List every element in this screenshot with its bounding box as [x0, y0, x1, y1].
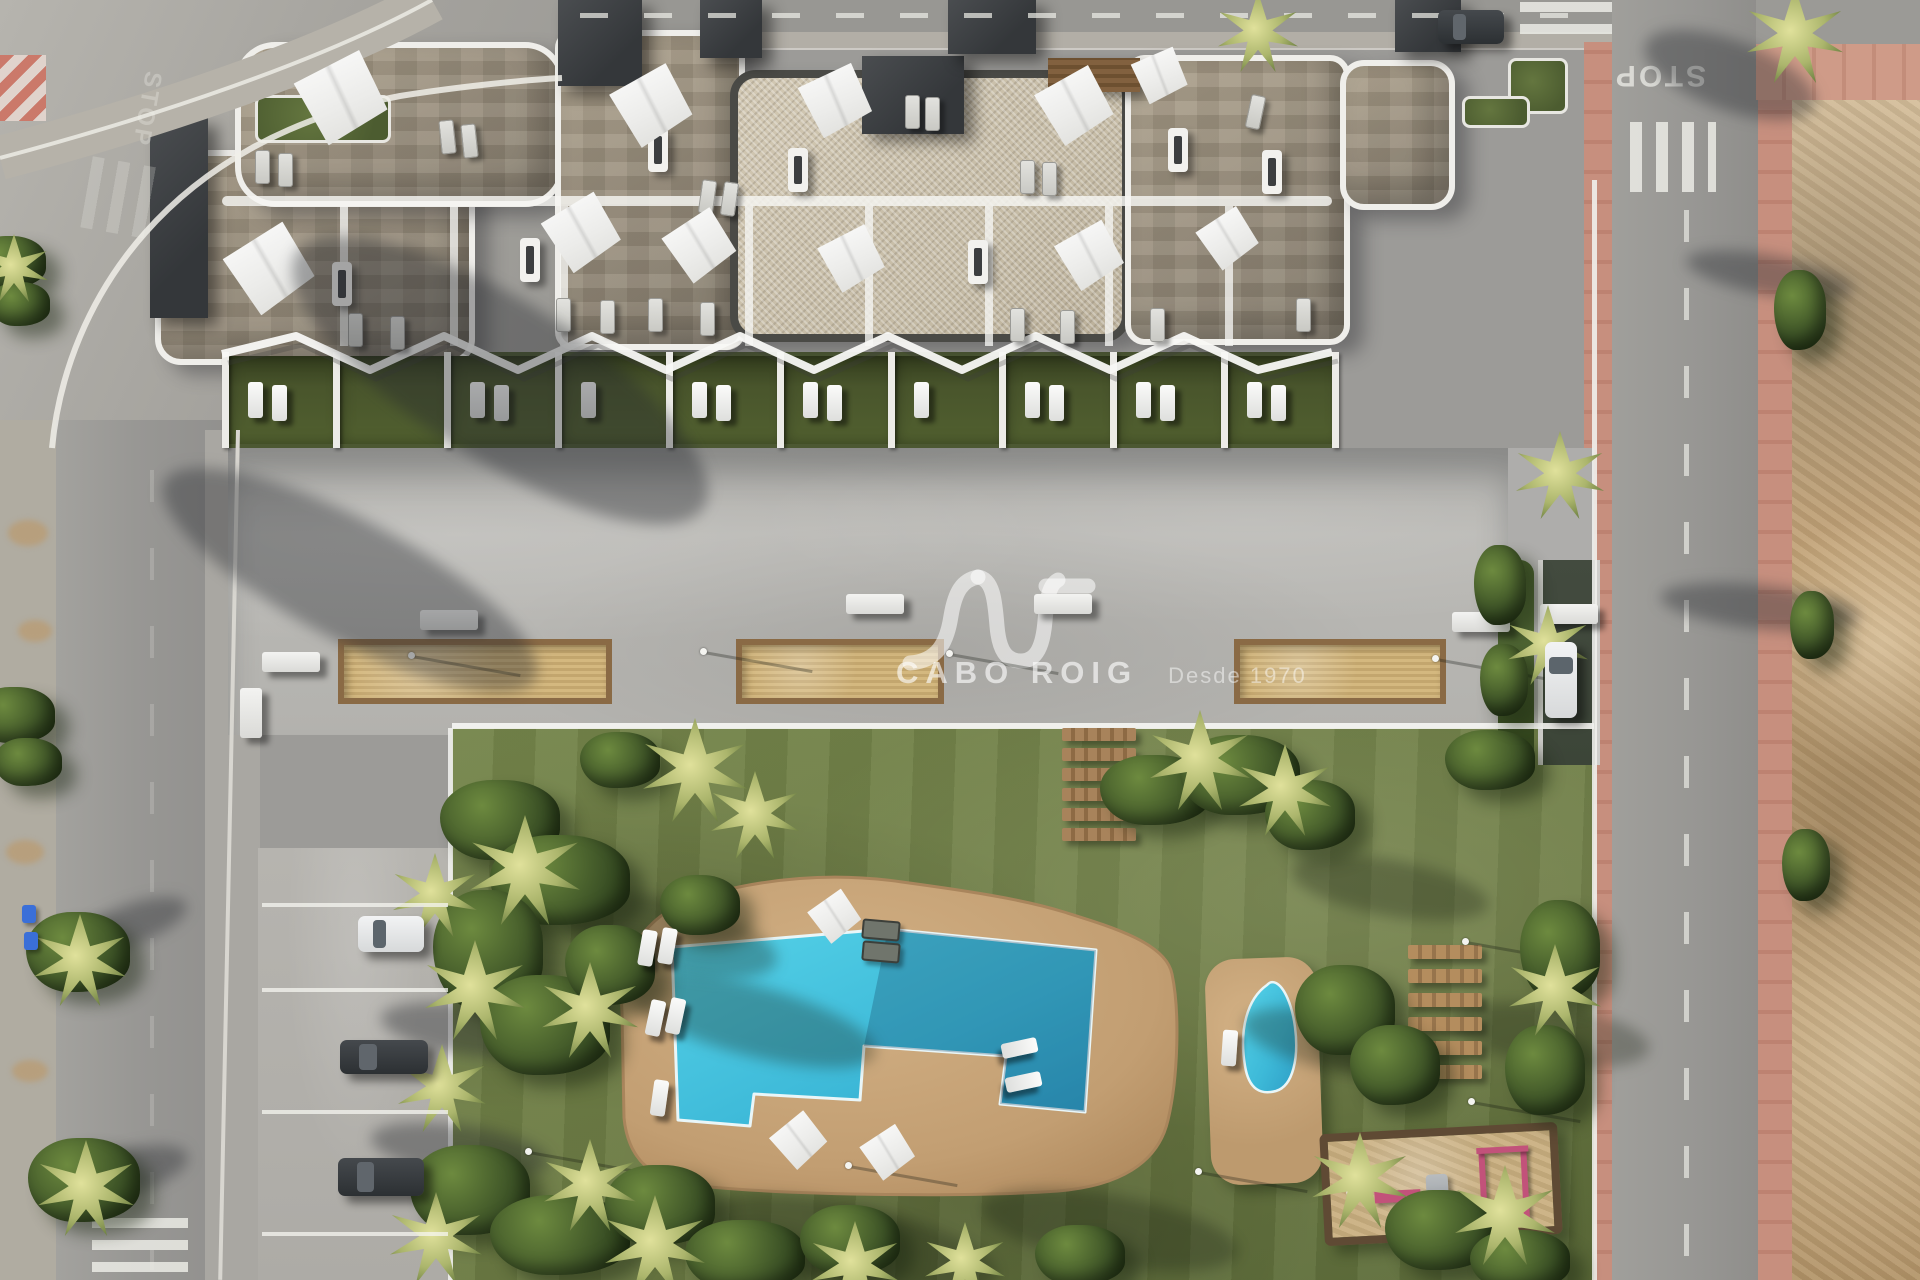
garden-lounger [914, 382, 929, 418]
garden-bush [660, 875, 740, 935]
recycling-bin [24, 932, 38, 950]
roof-lounger [925, 97, 940, 131]
private-garden-divider [1110, 352, 1117, 448]
roadside-bush [1774, 270, 1826, 350]
garden-lounger [1136, 382, 1151, 418]
garden-retaining-edge [452, 723, 1594, 729]
roadside-bush [1474, 545, 1526, 625]
sunbathing-platform [1408, 969, 1482, 983]
chimney [968, 240, 988, 284]
garden-lounger [803, 382, 818, 418]
stair-core-slab [700, 0, 762, 58]
garden-lounger [716, 385, 731, 421]
terrace-bench [846, 594, 904, 614]
crosswalk-northeast [1520, 2, 1612, 46]
parking-line [262, 1110, 448, 1114]
pool-lounger [1221, 1030, 1238, 1067]
garden-step-plank [1062, 828, 1136, 841]
private-garden-unit [888, 356, 999, 444]
lamp-post [1432, 655, 1439, 662]
garden-bush [1505, 1025, 1585, 1115]
chimney [1262, 150, 1282, 194]
garden-lounger [827, 385, 842, 421]
pool-lounger-dark [861, 918, 901, 941]
road-east-lane-dashes [1684, 210, 1689, 1280]
parking-line [262, 903, 448, 907]
garden-bush [580, 732, 660, 788]
garden-lounger [272, 385, 287, 421]
roadside-bush [1790, 591, 1834, 659]
lamp-post [845, 1162, 852, 1169]
green-roof [1462, 96, 1530, 128]
private-garden-divider [333, 352, 340, 448]
terrace-bench [262, 652, 320, 672]
crosswalk-faded-junction [80, 156, 163, 239]
street-car [1438, 10, 1504, 44]
roof-lounger [905, 95, 920, 129]
car-windshield [357, 1162, 374, 1192]
aerial-render: STOP STOP CABO ROIGDesde 1970 [0, 0, 1920, 1280]
sunbathing-platform [1408, 993, 1482, 1007]
lamp-post [1462, 938, 1469, 945]
chimney [1168, 128, 1188, 172]
roof-lounger [278, 153, 293, 187]
sunbathing-platform [1408, 945, 1482, 959]
terrace-divider-wall [1105, 206, 1113, 346]
street-car [1545, 642, 1577, 718]
private-garden-divider [888, 352, 895, 448]
roof-lounger [1042, 162, 1057, 196]
private-garden-divider [1332, 352, 1339, 448]
roof-lounger [255, 150, 270, 184]
roadside-bush [0, 738, 62, 786]
pool-lounger-dark [861, 940, 901, 963]
roof-lounger [648, 298, 663, 332]
sidewalk-dirt-patch [8, 520, 48, 546]
roadside-bush [1782, 829, 1830, 901]
roof-lounger [1296, 298, 1311, 332]
garden-lounger [1025, 382, 1040, 418]
private-garden-divider [222, 352, 229, 448]
garden-bush [1445, 730, 1535, 790]
roof-lounger [1020, 160, 1035, 194]
parking-line [262, 1232, 448, 1236]
garden-lounger [1160, 385, 1175, 421]
parking-line [262, 988, 448, 992]
garden-bush [1350, 1025, 1440, 1105]
property-fence-east [1592, 180, 1597, 1280]
crosswalk-southwest [92, 1218, 188, 1276]
garden-lounger [248, 382, 263, 418]
lamp-post [525, 1148, 532, 1155]
sidewalk-east-outer [1758, 44, 1792, 1280]
car-windshield [373, 920, 386, 948]
lamp-post [1468, 1098, 1475, 1105]
crosswalk-red-striped-northwest [0, 55, 46, 121]
roof-lounger [1150, 308, 1165, 342]
sidewalk-dirt-patch [18, 620, 52, 642]
recycling-bin [22, 905, 36, 923]
garden-lounger [1271, 385, 1286, 421]
lamp-post [1195, 1168, 1202, 1175]
garden-bush [1035, 1225, 1125, 1280]
terrace-bench [240, 688, 262, 738]
car-windshield [359, 1044, 377, 1070]
lamp-post [700, 648, 707, 655]
roof-wing-stone [1340, 60, 1455, 210]
garden-lounger [692, 382, 707, 418]
roadside-bush [0, 687, 55, 743]
terrace-divider-wall [745, 206, 753, 346]
parked-car [358, 916, 424, 952]
stair-core-slab [948, 0, 1036, 54]
parked-car [340, 1040, 428, 1074]
garden-step-plank [1062, 728, 1136, 741]
private-garden-divider [777, 352, 784, 448]
car-windshield [1453, 14, 1466, 40]
terrace-bench [1034, 594, 1092, 614]
chimney [520, 238, 540, 282]
sidewalk-dirt-patch [6, 840, 44, 864]
watermark-brand: CABO ROIG [896, 655, 1138, 690]
private-garden-divider [1221, 352, 1228, 448]
car-windshield [1549, 657, 1573, 674]
private-garden-divider [999, 352, 1006, 448]
garden-lounger [1049, 385, 1064, 421]
crosswalk-east [1630, 122, 1716, 192]
roof-lounger [1060, 310, 1075, 344]
roof-lounger [600, 300, 615, 334]
garden-bush [685, 1220, 805, 1280]
building-parapet-band [222, 196, 1332, 206]
roof-lounger [700, 302, 715, 336]
chimney [788, 148, 808, 192]
sidewalk-dirt-patch [12, 1060, 48, 1082]
watermark-tagline: Desde 1970 [1168, 663, 1307, 688]
stair-core-slab [150, 118, 208, 318]
watermark-text: CABO ROIGDesde 1970 [896, 655, 1307, 691]
garden-lounger [1247, 382, 1262, 418]
parked-car [338, 1158, 424, 1196]
roof-lounger [1010, 308, 1025, 342]
